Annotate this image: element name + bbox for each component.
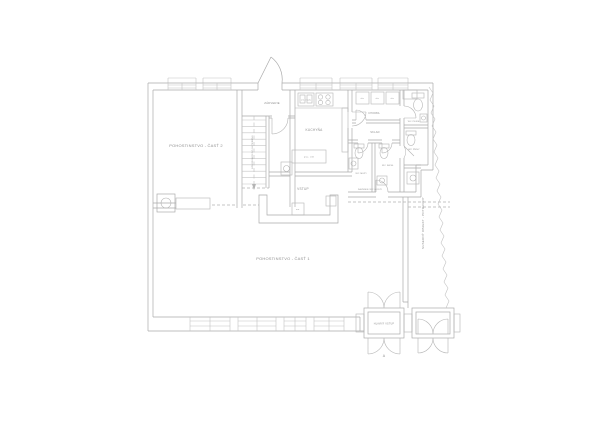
label-kitchen: KUCHYŇA	[306, 128, 324, 132]
toilet-icon	[412, 93, 424, 111]
toilet-icon	[354, 144, 364, 159]
kitchen-fixtures	[281, 93, 348, 175]
label-locker-1: skr.	[361, 98, 365, 100]
window-sill-lines	[168, 78, 408, 83]
label-locker-2: skr.	[376, 98, 380, 100]
stove-icon	[316, 93, 333, 106]
stair-direction-arrow	[252, 184, 256, 190]
label-neighbor-building: SUSEDNÝ OBJEKT - POTRAVINY	[421, 197, 425, 249]
label-staircase: SCHODISKO DO SUTERÉNU	[251, 135, 254, 169]
label-room-part2: POHOSTINSTVO - ČASŤ 2	[169, 143, 223, 148]
door-swing-top-entrance	[258, 57, 282, 83]
staff-lockers	[356, 90, 417, 104]
entrance-vestibule-b	[412, 308, 460, 353]
label-locker-3: skr.	[391, 98, 395, 100]
label-corridor: CHODBA	[368, 112, 380, 115]
label-main-entrance: HLAVNÝ VSTUP	[374, 323, 395, 326]
label-storage: SKLAD	[370, 130, 380, 134]
room-labels: POHOSTINSTVO - ČASŤ 2 POHOSTINSTVO - ČAS…	[169, 101, 425, 358]
label-entry: VSTUP	[297, 187, 309, 191]
sink-icon	[420, 114, 427, 122]
label-dishwasher: um. riadu	[301, 100, 311, 102]
toilet-icon	[379, 144, 389, 159]
label-room-part1: POHOSTINSTVO - ČASŤ 1	[256, 256, 310, 261]
label-vestibule: ZÁDVERIE	[264, 101, 280, 105]
label-wc-women: WC ŽENY	[408, 148, 420, 151]
interior-door-swings	[272, 106, 416, 192]
utility-sink-icon	[407, 172, 419, 184]
label-bar-washer: um.	[296, 209, 300, 211]
label-wc-disabled: WC IMOB.	[382, 165, 394, 167]
label-section-marker: A	[383, 354, 386, 358]
toilet-icon	[406, 131, 416, 146]
label-wc-men: WC MUŽI	[356, 172, 367, 175]
floor-plan-drawing: POHOSTINSTVO - ČASŤ 2 POHOSTINSTVO - ČAS…	[0, 0, 600, 426]
label-wc-staff: WC PERS.	[408, 121, 421, 123]
floor-plan-canvas: POHOSTINSTVO - ČASŤ 2 POHOSTINSTVO - ČAS…	[0, 0, 600, 426]
sink-icon	[349, 158, 358, 169]
staircase	[242, 116, 269, 190]
label-worktable: prac. stôl	[304, 156, 314, 159]
sanitary-fixtures	[349, 93, 427, 185]
left-counter	[176, 198, 210, 209]
label-back-area: ZÁZEMIE WC HOSTÍ	[358, 188, 382, 191]
neighbor-building-edge	[429, 87, 449, 308]
